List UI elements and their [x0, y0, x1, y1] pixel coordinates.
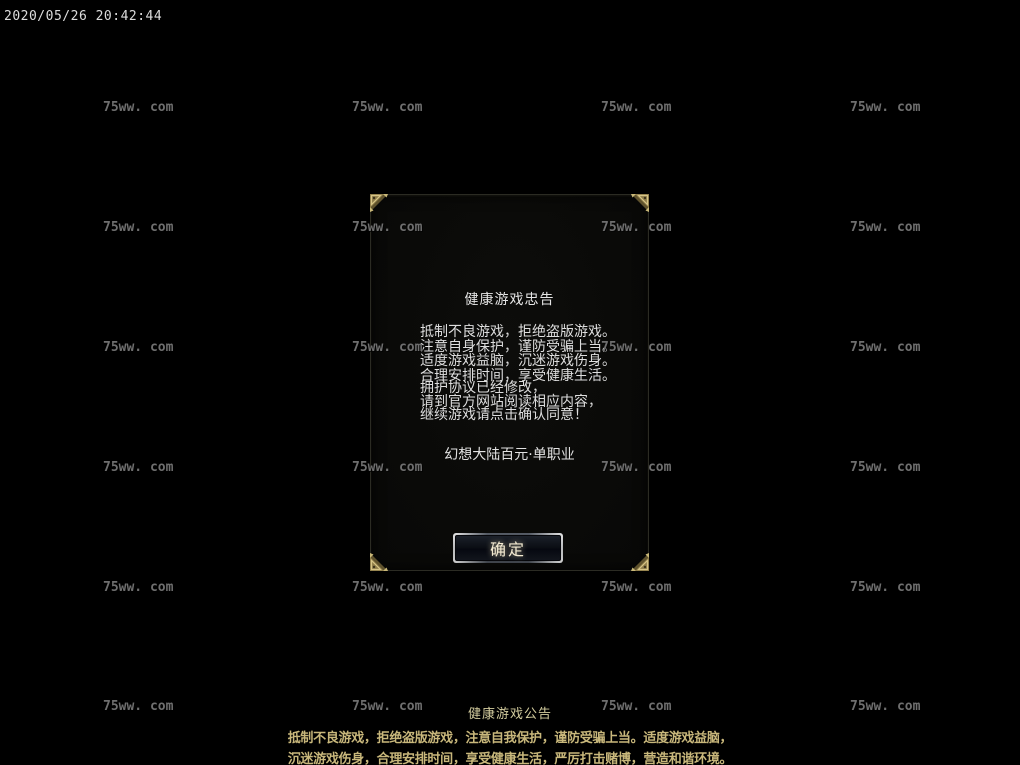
server-name: 幻想大陆百元·单职业	[371, 444, 648, 464]
watermark: 75ww. com	[103, 460, 173, 475]
game-screen: { "timestamp": "2020/05/26 20:42:44", "w…	[0, 0, 1020, 765]
confirm-button[interactable]: 确定	[453, 533, 563, 563]
watermark: 75ww. com	[850, 580, 920, 595]
watermark: 75ww. com	[601, 580, 671, 595]
watermark: 75ww. com	[601, 100, 671, 115]
corner-ornament-icon	[370, 553, 388, 571]
announcement-line: 抵制不良游戏，拒绝盗版游戏，注意自我保护，谨防受骗上当。适度游戏益脑，	[0, 727, 1020, 746]
advisory-line: 注意自身保护，谨防受骗上当。	[420, 340, 616, 355]
corner-ornament-icon	[631, 194, 649, 212]
timestamp: 2020/05/26 20:42:44	[4, 9, 162, 24]
watermark: 75ww. com	[850, 460, 920, 475]
watermark: 75ww. com	[103, 100, 173, 115]
watermark: 75ww. com	[352, 100, 422, 115]
corner-ornament-icon	[631, 553, 649, 571]
watermark: 75ww. com	[850, 100, 920, 115]
watermark: 75ww. com	[850, 340, 920, 355]
watermark: 75ww. com	[352, 580, 422, 595]
corner-ornament-icon	[370, 194, 388, 212]
watermark: 75ww. com	[103, 340, 173, 355]
watermark: 75ww. com	[103, 220, 173, 235]
advisory-line: 适度游戏益脑，沉迷游戏伤身。	[420, 354, 616, 369]
watermark: 75ww. com	[103, 580, 173, 595]
notice-lines: 拥护协议已经修改，请到官方网站阅读相应内容，继续游戏请点击确认同意！	[420, 382, 602, 423]
announcement-line: 沉迷游戏伤身，合理安排时间，享受健康生活，严厉打击赌博，营造和谐环境。	[0, 748, 1020, 765]
advisory-line: 抵制不良游戏，拒绝盗版游戏。	[420, 325, 616, 340]
advisory-lines: 抵制不良游戏，拒绝盗版游戏。注意自身保护，谨防受骗上当。适度游戏益脑，沉迷游戏伤…	[420, 325, 616, 383]
notice-line: 继续游戏请点击确认同意！	[420, 409, 602, 423]
health-advisory-dialog: 健康游戏忠告 抵制不良游戏，拒绝盗版游戏。注意自身保护，谨防受骗上当。适度游戏益…	[370, 194, 649, 571]
announcement-title: 健康游戏公告	[0, 703, 1020, 722]
dialog-title: 健康游戏忠告	[371, 289, 648, 309]
watermark: 75ww. com	[850, 220, 920, 235]
confirm-button-label: 确定	[455, 535, 561, 561]
